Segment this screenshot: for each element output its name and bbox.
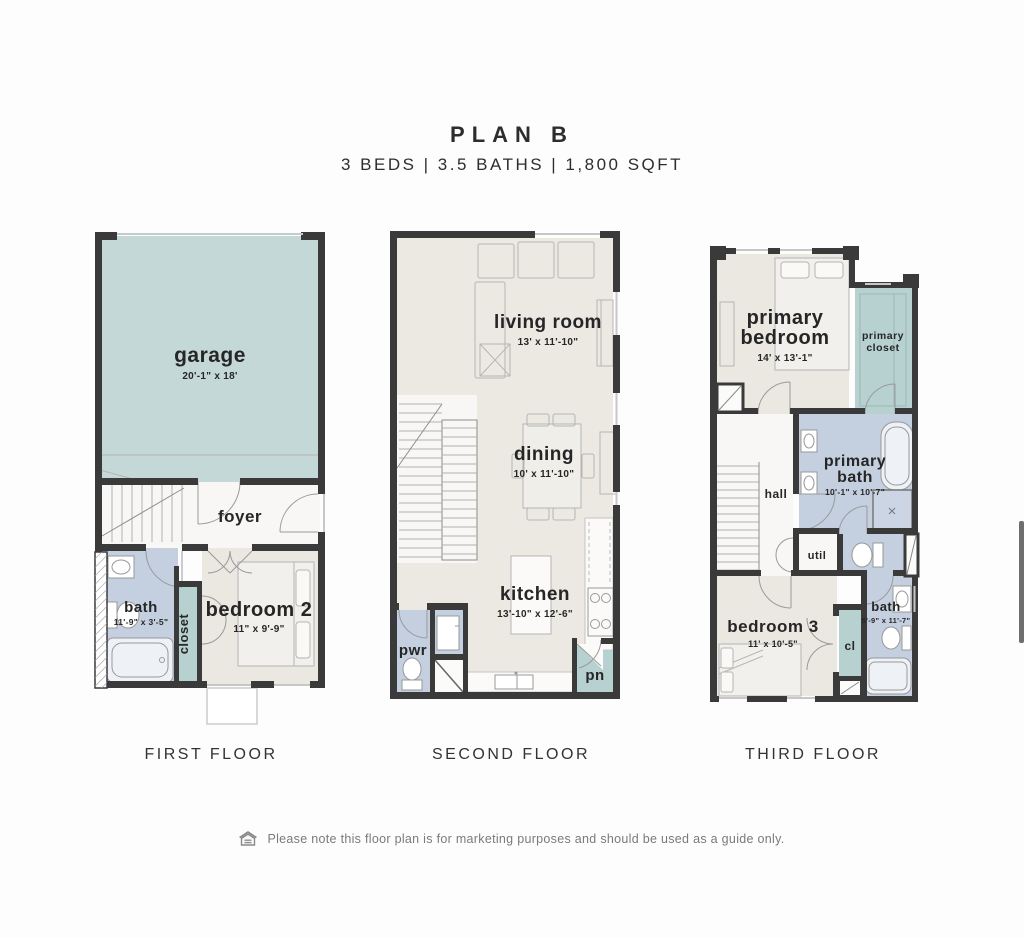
house-icon <box>239 831 257 846</box>
plan-subtitle: 3 BEDS | 3.5 BATHS | 1,800 SQFT <box>0 155 1024 175</box>
util-label: util <box>808 550 827 562</box>
toilet-bowl <box>403 658 421 680</box>
living-room-dims: 13' x 11'-10" <box>518 337 579 348</box>
pantry-label: pn <box>585 667 604 684</box>
dining-label: dining <box>514 444 574 465</box>
disclaimer-text: Please note this floor plan is for marke… <box>267 832 784 846</box>
bedroom2-dims: 11" x 9'-9" <box>233 624 284 635</box>
bedroom3-label: bedroom 3 <box>727 617 818 636</box>
primary-bath-label-2: bath <box>837 469 873 486</box>
toilet-tank <box>873 543 883 567</box>
kitchen-label: kitchen <box>500 584 570 605</box>
primary-bedroom-label-2: bedroom <box>740 327 829 349</box>
bath-sink <box>801 472 817 494</box>
primary-bedroom-dims: 14' x 13'-1" <box>757 353 812 364</box>
pillow <box>781 262 809 278</box>
second-floor-plan: living room 13' x 11'-10" dining 10' x 1… <box>385 228 627 706</box>
pillow <box>721 648 733 668</box>
cl-label: cl <box>844 639 855 653</box>
toilet-bowl <box>882 627 900 649</box>
hall-label: hall <box>765 487 788 501</box>
bedroom3-dims: 11' x 10'-5" <box>748 639 798 649</box>
toilet-bowl <box>852 543 872 567</box>
hatched-wall <box>95 552 107 688</box>
bath3-label: bath <box>871 599 900 614</box>
plan-title: PLAN B <box>0 122 1024 148</box>
dining-table <box>523 424 581 508</box>
first-floor-plan: garage 20'-1" x 18' foyer bath 11'-9" x … <box>88 226 332 730</box>
primary-closet-label-2: closet <box>866 342 899 354</box>
floor-plan-page: { "header": { "title": "PLAN B", "subtit… <box>0 0 1024 938</box>
bath3-dims: 5'-9" x 11'-7" <box>862 616 911 625</box>
primary-bedroom-label-1: primary <box>747 307 824 329</box>
garage-dims: 20'-1" x 18' <box>182 371 237 382</box>
living-room-label: living room <box>494 312 602 333</box>
primary-closet-label-1: primary <box>862 330 904 342</box>
third-floor-label: THIRD FLOOR <box>683 746 943 764</box>
bath-sink <box>801 430 817 452</box>
second-floor-label: SECOND FLOOR <box>381 746 641 764</box>
toilet-tank <box>902 626 911 650</box>
porch-outline <box>207 688 257 724</box>
bath-label: bath <box>124 599 158 616</box>
pwr-label: pwr <box>399 642 427 659</box>
third-floor-plan: primary bedroom 14' x 13'-1" primary clo… <box>703 238 925 730</box>
pillow <box>815 262 843 278</box>
first-floor-label: FIRST FLOOR <box>81 746 341 764</box>
foyer-label: foyer <box>218 507 262 526</box>
kitchen-dims: 13'-10" x 12'-6" <box>497 609 573 620</box>
closet-label: closet <box>176 614 191 655</box>
toilet-tank <box>402 680 422 690</box>
dining-dims: 10' x 11'-10" <box>514 469 575 480</box>
pillow <box>296 622 310 658</box>
bath-dims: 11'-9" x 3'-5" <box>114 617 169 627</box>
primary-bath-label-1: primary <box>824 453 886 470</box>
garage-door <box>117 233 303 235</box>
kitchen-sink <box>495 675 517 689</box>
vanity-sink <box>437 616 459 650</box>
pillow <box>721 672 733 692</box>
bedroom2-label: bedroom 2 <box>206 599 313 621</box>
scrollbar-thumb[interactable] <box>1019 521 1024 643</box>
disclaimer: Please note this floor plan is for marke… <box>0 831 1024 846</box>
foyer-area <box>100 482 320 548</box>
primary-bath-dims: 10'-1" x 10'-7" <box>825 487 885 497</box>
garage-label: garage <box>174 344 246 367</box>
